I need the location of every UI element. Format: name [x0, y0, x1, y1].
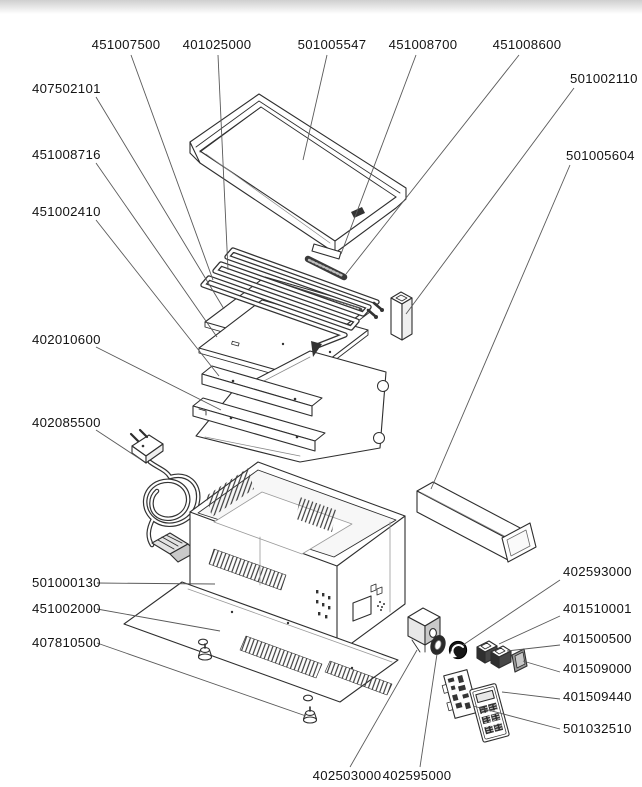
page-top-band: [0, 0, 642, 14]
part-number-rocker-switch-left: 401510001: [563, 601, 632, 616]
part-number-heating-element-coil: 401025000: [183, 37, 252, 52]
leader-line-clamp-bar-dark: [346, 55, 519, 274]
part-grease-drawer: [417, 482, 536, 562]
part-number-switch-cap: 401509000: [563, 661, 632, 676]
part-number-rocker-switch-right: 401500500: [563, 631, 632, 646]
leader-line-grease-drawer: [431, 165, 570, 489]
leader-line-switch-cap: [523, 661, 560, 672]
part-number-control-panel-overlay: 401509440: [563, 689, 632, 704]
part-number-support-plate: 407502101: [32, 81, 101, 96]
part-number-grease-drawer: 501005604: [566, 148, 635, 163]
leader-line-support-rail-upper: [96, 220, 219, 376]
leader-line-spacer-duct: [406, 88, 574, 314]
parts-diagram-page: 4510075004010250005010055474510087004510…: [0, 0, 642, 787]
part-number-support-rail-lower: 402010600: [32, 332, 101, 347]
part-clamp-bar-dark: [308, 259, 344, 277]
part-number-knob: 402593000: [563, 564, 632, 579]
leader-line-knob: [463, 580, 560, 645]
part-number-spacer-duct: 501002110: [570, 71, 638, 86]
part-number-griddle-plate: 501005547: [298, 37, 367, 52]
part-number-clamp-bar: 451008700: [389, 37, 458, 52]
part-switch-cap: [512, 649, 527, 672]
leader-line-rocker-switch-right: [507, 645, 560, 651]
part-number-bottom-panel: 451002000: [32, 601, 101, 616]
part-number-clamp-bar-dark: 451008600: [493, 37, 562, 52]
part-number-reflector-plate: 451008716: [32, 147, 101, 162]
leader-line-rocker-switch-left: [499, 616, 560, 644]
part-foot-2: [304, 707, 317, 723]
part-spacer-duct: [391, 292, 412, 340]
part-number-knob-bezel: 402595000: [383, 768, 452, 783]
leader-line-reflector-plate: [96, 163, 217, 337]
part-number-support-rail-upper: 451002410: [32, 204, 101, 219]
part-number-power-cord: 402085500: [32, 415, 101, 430]
part-number-housing-body: 501000130: [32, 575, 101, 590]
leader-line-control-panel-overlay: [502, 692, 560, 699]
part-power-cord: [131, 430, 198, 562]
leader-line-knob-bezel: [420, 654, 437, 767]
part-number-foot: 407810500: [32, 635, 101, 650]
leader-line-support-plate: [96, 97, 224, 309]
leader-line-heating-element: [131, 55, 213, 280]
exploded-parts-diagram: 4510075004010250005010055474510087004510…: [0, 0, 642, 787]
part-number-thermostat: 402503000: [313, 768, 382, 783]
part-griddle-plate: [190, 94, 406, 253]
part-number-control-pcb: 501032510: [563, 721, 632, 736]
part-number-heating-element: 451007500: [92, 37, 161, 52]
